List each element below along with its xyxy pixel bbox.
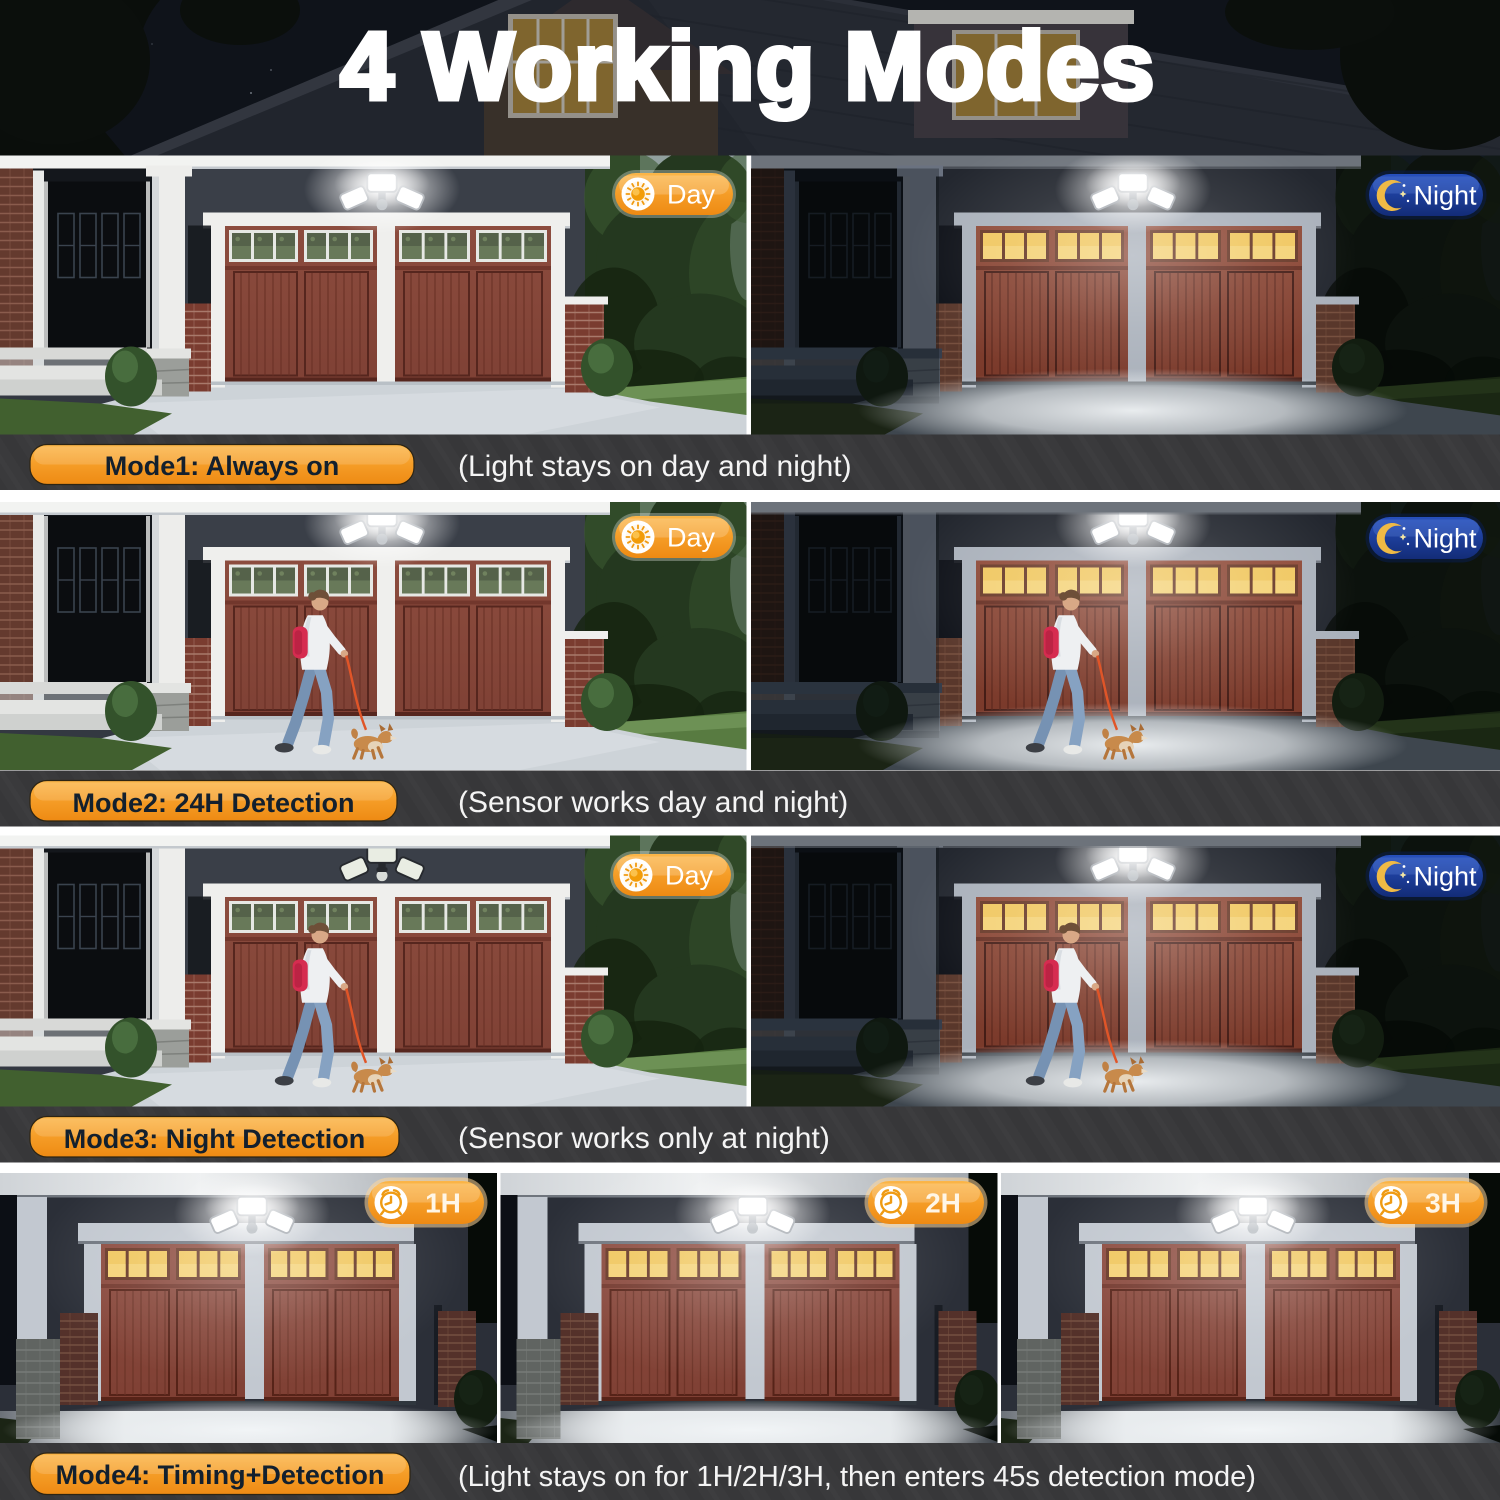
svg-text:Mode1: Always on: Mode1: Always on [105, 451, 340, 481]
svg-text:3H: 3H [1425, 1188, 1461, 1219]
svg-text:2H: 2H [925, 1188, 961, 1219]
svg-text:Night: Night [1413, 181, 1477, 211]
svg-text:4 Working Modes: 4 Working Modes [340, 13, 1155, 120]
svg-text:Night: Night [1413, 862, 1477, 892]
svg-text:Day: Day [667, 180, 716, 210]
svg-text:Night: Night [1413, 524, 1477, 554]
svg-text:Mode3: Night Detection: Mode3: Night Detection [64, 1124, 366, 1154]
svg-text:(Light stays on for 1H/2H/3H,: (Light stays on for 1H/2H/3H, then enter… [458, 1461, 1256, 1493]
svg-text:1H: 1H [425, 1188, 461, 1219]
svg-text:Mode2: 24H Detection: Mode2: 24H Detection [72, 788, 354, 818]
svg-text:(Light stays on day and night): (Light stays on day and night) [458, 450, 852, 483]
svg-text:(Sensor works day and night): (Sensor works day and night) [458, 786, 848, 819]
svg-text:Day: Day [667, 523, 716, 553]
svg-text:Mode4: Timing+Detection: Mode4: Timing+Detection [56, 1460, 385, 1490]
svg-text:Day: Day [665, 861, 714, 891]
svg-text:(Sensor works only at night): (Sensor works only at night) [458, 1122, 830, 1155]
